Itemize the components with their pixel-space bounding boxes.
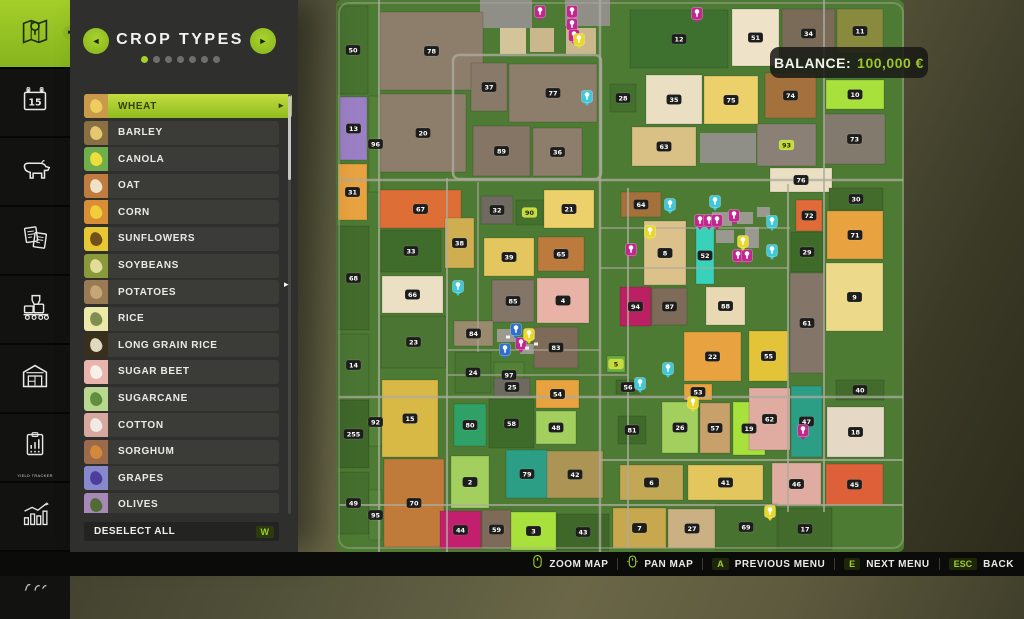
olives-crop-icon	[84, 493, 108, 513]
sidebar-item-calendar[interactable]: 15	[0, 69, 70, 136]
field-number-tag: 95	[368, 510, 383, 520]
svg-text:93: 93	[782, 142, 791, 150]
svg-text:72: 72	[804, 212, 813, 220]
field-number-tag: 17	[798, 524, 813, 534]
page-dot	[177, 56, 184, 63]
svg-text:31: 31	[348, 189, 358, 197]
svg-text:52: 52	[700, 252, 709, 260]
field-number-tag: 49	[346, 498, 361, 508]
page-dot	[201, 56, 208, 63]
field-number-tag: 5	[609, 359, 624, 369]
deselect-all-label: DESELECT ALL	[94, 526, 256, 537]
corn-crop-icon	[84, 200, 108, 224]
bottom-bar: ZOOM MAPPAN MAPAPREVIOUS MENUENEXT MENUE…	[0, 552, 1024, 576]
svg-text:2: 2	[468, 479, 473, 487]
svg-text:70: 70	[409, 500, 419, 508]
field-number-tag: 59	[489, 525, 504, 535]
field-number-tag: 65	[554, 249, 569, 259]
crop-row-sorghum[interactable]: SORGHUM	[84, 440, 279, 464]
svg-text:5: 5	[614, 361, 619, 369]
field-number-tag: 67	[413, 204, 428, 214]
contracts-icon	[16, 219, 54, 262]
field-number-tag: 15	[403, 414, 418, 424]
svg-text:7: 7	[637, 525, 642, 533]
wheat-crop-icon	[84, 94, 108, 118]
crop-list: WHEAT►BARLEYCANOLAOATCORNSUNFLOWERSSOYBE…	[84, 94, 296, 513]
yield-tracker-caption: YIELD TRACKER	[0, 473, 70, 478]
field-number-tag: 46	[789, 479, 804, 489]
svg-text:15: 15	[28, 98, 41, 109]
field-number-tag: 57	[708, 423, 723, 433]
field-number-tag: 43	[576, 527, 591, 537]
field-number-tag: 48	[549, 423, 564, 433]
field-number-tag: 42	[568, 470, 583, 480]
svg-text:34: 34	[804, 30, 814, 38]
crop-row-wheat[interactable]: WHEAT►	[84, 94, 292, 118]
field-number-tag: 30	[849, 194, 864, 204]
svg-text:96: 96	[371, 141, 381, 149]
svg-text:20: 20	[418, 130, 428, 138]
svg-text:90: 90	[525, 209, 535, 217]
svg-text:94: 94	[631, 303, 641, 311]
map-zone	[530, 28, 554, 52]
page-dots	[70, 56, 290, 63]
crop-row-grapes[interactable]: GRAPES	[84, 466, 279, 490]
field-number-tag: 11	[853, 26, 868, 36]
page-dot	[141, 56, 148, 63]
svg-text:36: 36	[553, 149, 563, 157]
field-number-tag: 44	[453, 525, 468, 535]
svg-text:41: 41	[721, 479, 731, 487]
svg-text:88: 88	[721, 303, 731, 311]
svg-text:39: 39	[504, 254, 514, 262]
balance-value: 100,000 €	[857, 55, 924, 71]
key-badge-e: E	[844, 558, 860, 570]
field-number-tag: 96	[368, 139, 383, 149]
sunflowers-crop-icon	[84, 227, 108, 251]
field-number-tag: 36	[550, 147, 565, 157]
crop-row-barley[interactable]: BARLEY	[84, 121, 279, 145]
field-number-tag: 21	[562, 204, 577, 214]
field-number-tag: 76	[794, 175, 809, 185]
sugarcane-crop-icon	[84, 387, 108, 411]
cotton-crop-icon	[84, 413, 108, 437]
field-number-tag: 79	[520, 469, 535, 479]
field-number-tag: 83	[549, 343, 564, 353]
svg-text:92: 92	[371, 419, 380, 427]
field-number-tag: 88	[718, 301, 733, 311]
rice-crop-icon	[84, 307, 108, 331]
crop-row-soybeans[interactable]: SOYBEANS	[84, 254, 279, 278]
field-number-tag: 26	[673, 423, 688, 433]
svg-text:85: 85	[508, 298, 518, 306]
vehicle-dot	[506, 336, 510, 339]
crop-row-rice[interactable]: RICE	[84, 307, 279, 331]
svg-text:61: 61	[802, 320, 812, 328]
hint-label: PAN MAP	[644, 559, 693, 570]
field-number-tag: 74	[783, 91, 798, 101]
field-number-tag: 29	[800, 247, 815, 257]
field-number-tag: 68	[346, 273, 361, 283]
svg-text:255: 255	[347, 431, 361, 439]
balance-label: BALANCE:	[774, 55, 851, 71]
svg-text:23: 23	[409, 339, 418, 347]
crop-label: SORGHUM	[118, 446, 174, 457]
sidebar-item-yield-tracker[interactable]: YIELD TRACKER	[0, 414, 70, 481]
field-number-tag: 45	[847, 480, 862, 490]
svg-text:74: 74	[786, 92, 796, 100]
bottom-bar-divider	[939, 558, 940, 570]
svg-text:59: 59	[492, 526, 502, 534]
next-category-button[interactable]: ►	[250, 28, 276, 54]
field-number-tag: 255	[344, 429, 364, 439]
field-number-tag: 40	[853, 385, 868, 395]
field-number-tag: 61	[800, 318, 815, 328]
field-number-tag: 78	[424, 46, 439, 56]
crop-row-oat[interactable]: OAT	[84, 174, 279, 198]
panel-expand-arrow[interactable]: ▸	[284, 279, 289, 290]
vehicle-dot	[525, 347, 529, 350]
field-number-tag: 19	[742, 424, 757, 434]
page-dot	[189, 56, 196, 63]
field-number-tag: 12	[672, 34, 687, 44]
soybeans-crop-icon	[84, 254, 108, 278]
crop-label: OAT	[118, 180, 140, 191]
svg-text:50: 50	[348, 47, 358, 55]
balance-badge: BALANCE: 100,000 €	[770, 47, 928, 78]
svg-text:13: 13	[349, 125, 358, 133]
hint-label: NEXT MENU	[866, 559, 929, 570]
field-number-tag: 70	[407, 498, 422, 508]
svg-text:64: 64	[636, 201, 646, 209]
svg-text:76: 76	[796, 177, 806, 185]
svg-text:37: 37	[484, 84, 493, 92]
field-number-tag: 7	[632, 523, 647, 533]
field-number-tag: 25	[505, 382, 520, 392]
svg-text:87: 87	[665, 303, 674, 311]
crop-label: GRAPES	[118, 473, 164, 484]
field-number-tag: 34	[801, 29, 816, 39]
svg-text:46: 46	[792, 481, 802, 489]
field-number-tag: 84	[466, 329, 481, 339]
sidebar-item-statistics[interactable]	[0, 483, 70, 550]
svg-text:18: 18	[851, 429, 861, 437]
crop-label: CANOLA	[118, 154, 164, 165]
field-number-tag: 73	[847, 134, 862, 144]
svg-text:44: 44	[456, 527, 466, 535]
svg-text:30: 30	[851, 196, 861, 204]
svg-text:42: 42	[570, 471, 579, 479]
hint-next-menu: ENEXT MENU	[844, 558, 929, 570]
sidebar-item-contracts[interactable]	[0, 207, 70, 274]
deselect-all-key: W	[256, 526, 275, 538]
svg-text:4: 4	[561, 297, 566, 305]
svg-text:56: 56	[623, 384, 633, 392]
svg-text:14: 14	[349, 362, 359, 370]
field-number-tag: 66	[405, 290, 420, 300]
svg-text:26: 26	[675, 424, 685, 432]
map-zone	[700, 133, 756, 163]
oat-crop-icon	[84, 174, 108, 198]
field-number-tag: 9	[847, 292, 862, 302]
field-number-tag: 97	[502, 370, 517, 380]
crop-row-olives[interactable]: OLIVES	[84, 493, 279, 513]
svg-text:33: 33	[406, 248, 415, 256]
field-number-tag: 18	[848, 427, 863, 437]
field-number-tag: 52	[698, 251, 713, 261]
field-number-tag: 13	[346, 124, 361, 134]
crop-label: COTTON	[118, 420, 164, 431]
svg-text:19: 19	[744, 425, 754, 433]
svg-text:84: 84	[469, 330, 479, 338]
scrollbar-thumb[interactable]	[288, 96, 291, 180]
svg-text:35: 35	[669, 96, 679, 104]
field-number-tag: 75	[724, 95, 739, 105]
svg-text:67: 67	[416, 206, 425, 214]
barley-crop-icon	[84, 121, 108, 145]
svg-text:32: 32	[492, 207, 501, 215]
calendar-icon: 15	[16, 81, 54, 124]
field-number-tag: 4	[556, 296, 571, 306]
bottom-bar-divider	[702, 558, 703, 570]
svg-text:11: 11	[855, 28, 865, 36]
svg-text:10: 10	[850, 91, 860, 99]
svg-text:25: 25	[507, 384, 517, 392]
sorghum-crop-icon	[84, 440, 108, 464]
crop-row-sugar-beet[interactable]: SUGAR BEET	[84, 360, 279, 384]
production-icon	[16, 288, 54, 331]
svg-text:12: 12	[674, 36, 683, 44]
crop-row-sugarcane[interactable]: SUGARCANE	[84, 387, 279, 411]
sidebar-item-production[interactable]	[0, 276, 70, 343]
field-number-tag: 24	[466, 368, 481, 378]
mouse-pan-icon	[627, 554, 638, 574]
field-number-tag: 32	[490, 205, 505, 215]
field-number-tag: 80	[463, 420, 478, 430]
map-zone	[716, 230, 734, 243]
svg-text:81: 81	[627, 427, 637, 435]
svg-text:68: 68	[349, 275, 359, 283]
svg-text:8: 8	[663, 250, 668, 258]
field-number-tag: 90	[522, 208, 537, 218]
crop-label: LONG GRAIN RICE	[118, 340, 218, 351]
field-number-tag: 38	[452, 238, 467, 248]
svg-text:66: 66	[408, 291, 418, 299]
crop-row-sunflowers[interactable]: SUNFLOWERS	[84, 227, 279, 251]
bottom-bar-divider	[617, 558, 618, 570]
svg-text:78: 78	[427, 48, 437, 56]
field-number-tag: 14	[346, 360, 361, 370]
svg-text:97: 97	[504, 372, 513, 380]
page-dot	[153, 56, 160, 63]
field-number-tag: 58	[504, 419, 519, 429]
field-number-tag: 37	[482, 82, 497, 92]
key-badge-a: A	[712, 558, 729, 570]
svg-text:17: 17	[800, 526, 809, 534]
field-number-tag: 81	[625, 425, 640, 435]
crop-row-corn[interactable]: CORN	[84, 200, 279, 224]
svg-text:71: 71	[850, 232, 860, 240]
svg-text:69: 69	[741, 524, 751, 532]
previous-category-button[interactable]: ◄	[83, 28, 109, 54]
bottom-bar-divider	[834, 558, 835, 570]
svg-text:75: 75	[726, 97, 736, 105]
page-dot	[165, 56, 172, 63]
grapes-crop-icon	[84, 466, 108, 490]
field-number-tag: 50	[346, 45, 361, 55]
sidebar-item-map[interactable]: ▸	[0, 0, 70, 67]
svg-text:58: 58	[507, 420, 517, 428]
svg-text:53: 53	[693, 389, 702, 397]
vehicle-dot	[534, 343, 538, 346]
svg-text:51: 51	[751, 34, 761, 42]
hint-zoom-map: ZOOM MAP	[532, 554, 608, 574]
field-number-tag: 85	[506, 296, 521, 306]
field-number-tag: 71	[848, 230, 863, 240]
svg-text:21: 21	[564, 206, 574, 214]
svg-text:73: 73	[850, 136, 859, 144]
field-number-tag: 33	[404, 246, 419, 256]
canola-crop-icon	[84, 147, 108, 171]
svg-text:22: 22	[708, 353, 717, 361]
field-number-tag: 56	[621, 382, 636, 392]
field-number-tag: 92	[368, 417, 383, 427]
svg-text:55: 55	[764, 353, 774, 361]
svg-text:28: 28	[618, 95, 628, 103]
hint-label: BACK	[983, 559, 1014, 570]
crop-label: CORN	[118, 207, 150, 218]
deselect-all-button[interactable]: DESELECT ALL W	[84, 522, 279, 541]
field-number-tag: 28	[616, 93, 631, 103]
field-number-tag: 89	[494, 146, 509, 156]
field-number-tag: 77	[546, 88, 561, 98]
svg-text:89: 89	[497, 148, 507, 156]
field-number-tag: 35	[667, 95, 682, 105]
field-number-tag: 55	[761, 351, 776, 361]
field-number-tag: 54	[550, 389, 565, 399]
map-icon	[16, 12, 54, 55]
sidebar-item-animals[interactable]	[0, 138, 70, 205]
hint-back: ESCBACK	[949, 558, 1014, 570]
svg-text:27: 27	[687, 525, 696, 533]
field-number-tag: 69	[739, 522, 754, 532]
field-number-tag: 41	[718, 478, 733, 488]
svg-text:6: 6	[649, 479, 654, 487]
field-number-tag: 3	[526, 526, 541, 536]
svg-text:57: 57	[710, 425, 719, 433]
hint-pan-map: PAN MAP	[627, 554, 693, 574]
hint-label: ZOOM MAP	[549, 559, 608, 570]
crop-label: SOYBEANS	[118, 260, 179, 271]
svg-text:63: 63	[659, 143, 668, 151]
svg-text:54: 54	[553, 391, 563, 399]
field-number-tag: 63	[657, 142, 672, 152]
crop-label: BARLEY	[118, 127, 163, 138]
svg-text:48: 48	[551, 424, 561, 432]
svg-text:29: 29	[802, 249, 812, 257]
field-number-tag: 72	[802, 211, 817, 221]
svg-text:49: 49	[349, 500, 359, 508]
field-number-tag: 51	[748, 33, 763, 43]
field-number-tag: 27	[685, 524, 700, 534]
svg-text:83: 83	[551, 344, 560, 352]
long-grain-rice-crop-icon	[84, 333, 108, 357]
page-dot	[213, 56, 220, 63]
field-number-tag: 23	[406, 337, 421, 347]
statistics-icon	[16, 495, 54, 538]
field-number-tag: 87	[662, 302, 677, 312]
storage-icon	[16, 357, 54, 400]
yield-tracker-icon	[16, 426, 54, 469]
svg-text:80: 80	[465, 422, 475, 430]
hint-previous-menu: APREVIOUS MENU	[712, 558, 825, 570]
crop-label: SUGARCANE	[118, 393, 188, 404]
field-number-tag: 2	[463, 477, 478, 487]
key-badge-esc: ESC	[949, 558, 978, 570]
crop-row-long-grain-rice[interactable]: LONG GRAIN RICE	[84, 333, 279, 357]
sidebar: ▸15YIELD TRACKER	[0, 0, 70, 552]
svg-text:43: 43	[578, 529, 587, 537]
svg-text:62: 62	[765, 416, 774, 424]
svg-text:65: 65	[556, 251, 566, 259]
svg-text:9: 9	[852, 294, 857, 302]
crop-types-panel: ◄ ► CROP TYPES WHEAT►BARLEYCANOLAOATCORN…	[70, 0, 298, 552]
map-zone	[480, 0, 532, 28]
panel-title: CROP TYPES	[114, 31, 246, 49]
svg-text:15: 15	[405, 415, 415, 423]
crop-label: WHEAT	[118, 101, 157, 112]
field-number-tag: 20	[416, 128, 431, 138]
svg-text:24: 24	[468, 369, 478, 377]
potatoes-crop-icon	[84, 280, 108, 304]
crop-label: OLIVES	[118, 499, 158, 510]
animals-icon	[16, 150, 54, 193]
farm-map[interactable]: 5013316814255499692957820673366231570377…	[330, 0, 908, 552]
sidebar-item-storage[interactable]	[0, 345, 70, 412]
svg-text:79: 79	[522, 471, 532, 479]
crop-label: RICE	[118, 313, 144, 324]
field-number-tag: 93	[779, 140, 794, 150]
svg-text:77: 77	[548, 90, 557, 98]
crop-label: POTATOES	[118, 287, 176, 298]
field-number-tag: 31	[345, 187, 360, 197]
svg-text:3: 3	[531, 528, 536, 536]
svg-text:40: 40	[855, 387, 865, 395]
map-zone	[500, 28, 526, 54]
field-number-tag: 62	[762, 414, 777, 424]
field-number-tag: 53	[691, 387, 706, 397]
field-number-tag: 6	[644, 478, 659, 488]
crop-label: SUNFLOWERS	[118, 233, 195, 244]
selected-crop-arrow: ►	[277, 101, 285, 110]
field-number-tag: 8	[658, 248, 673, 258]
sugar-beet-crop-icon	[84, 360, 108, 384]
field-number-tag: 94	[628, 302, 643, 312]
crop-row-canola[interactable]: CANOLA	[84, 147, 279, 171]
svg-text:95: 95	[371, 512, 381, 520]
field-number-tag: 64	[634, 200, 649, 210]
crop-row-potatoes[interactable]: POTATOES	[84, 280, 279, 304]
crop-row-cotton[interactable]: COTTON	[84, 413, 279, 437]
crop-label: SUGAR BEET	[118, 366, 190, 377]
hint-label: PREVIOUS MENU	[735, 559, 825, 570]
mouse-wheel-icon	[532, 554, 543, 574]
field-number-tag: 10	[848, 90, 863, 100]
field-number-tag: 39	[502, 252, 517, 262]
svg-text:38: 38	[455, 240, 465, 248]
field-number-tag: 22	[705, 352, 720, 362]
svg-text:45: 45	[850, 481, 860, 489]
